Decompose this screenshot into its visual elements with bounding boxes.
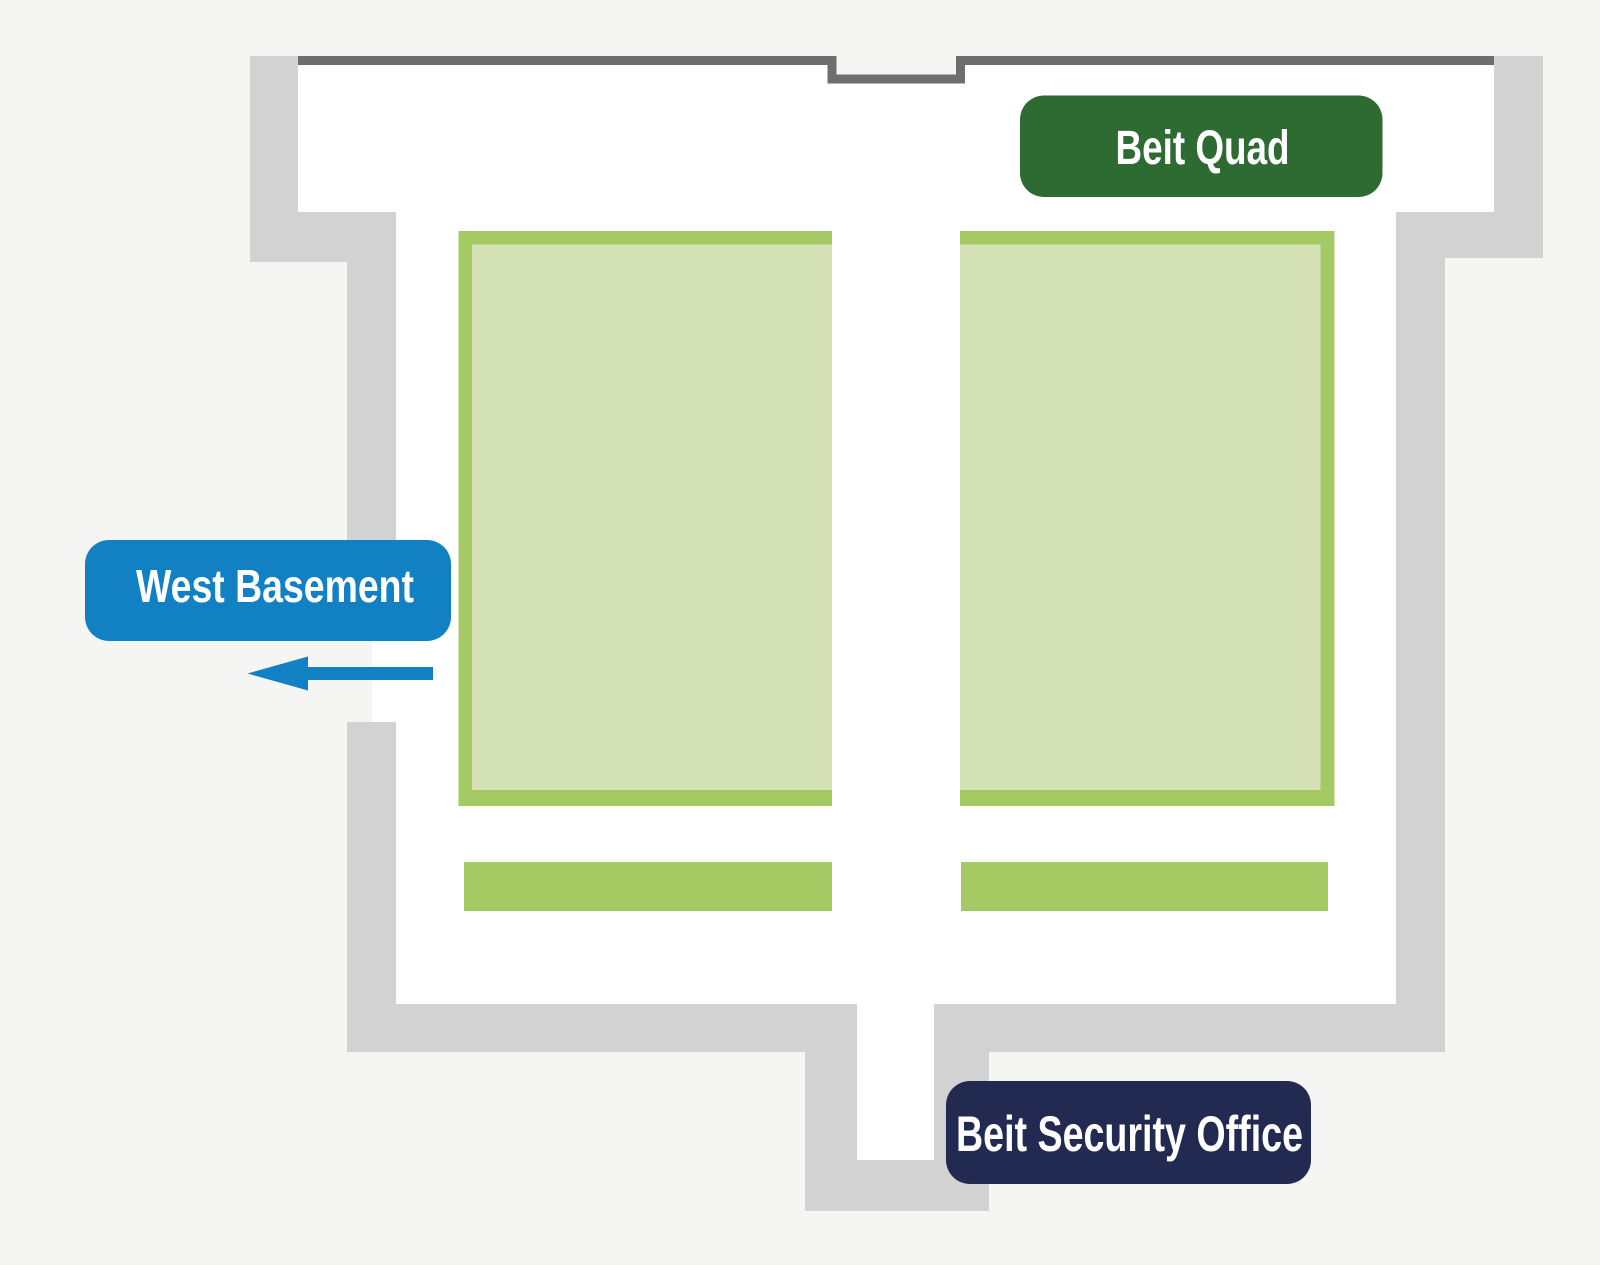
svg-text:Beit Security Office: Beit Security Office (956, 1106, 1303, 1162)
svg-text:West Basement: West Basement (136, 560, 414, 612)
svg-text:Beit Quad: Beit Quad (1116, 122, 1290, 175)
